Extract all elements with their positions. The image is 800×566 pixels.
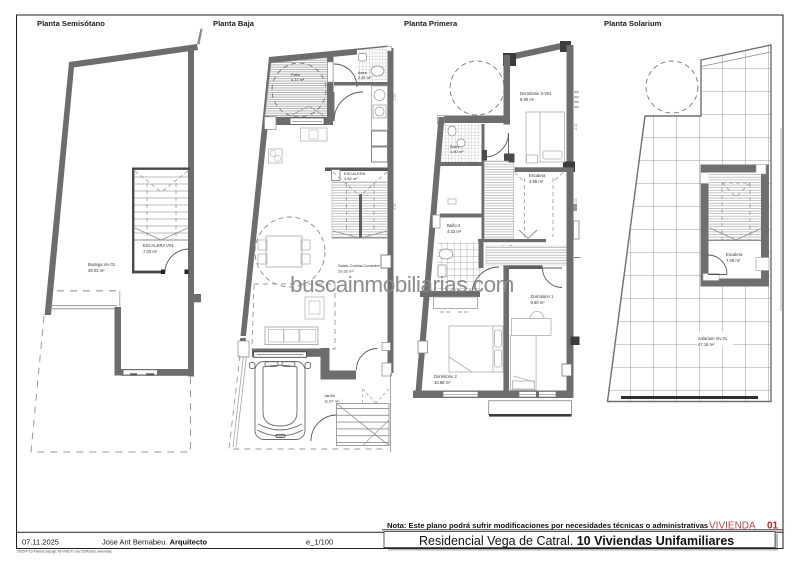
svg-text:9.60 m²: 9.60 m² bbox=[531, 300, 546, 305]
svg-text:Dormitorio 2: Dormitorio 2 bbox=[434, 374, 457, 379]
svg-text:47.16 m²: 47.16 m² bbox=[698, 342, 715, 347]
svg-text:4.33 m²: 4.33 m² bbox=[447, 229, 462, 234]
svg-text:8.90 m²: 8.90 m² bbox=[520, 97, 535, 102]
svg-text:Dormitorio 1: Dormitorio 1 bbox=[531, 294, 554, 299]
svg-text:11.67 m²: 11.67 m² bbox=[324, 399, 340, 404]
svg-text:Escalera: Escalera bbox=[529, 173, 546, 178]
svg-text:Solarium Viv 01: Solarium Viv 01 bbox=[698, 336, 728, 341]
svg-text:Dormitorio 3-V01: Dormitorio 3-V01 bbox=[520, 91, 552, 96]
svg-text:7.03 m²: 7.03 m² bbox=[143, 249, 158, 254]
svg-text:4.96 m²: 4.96 m² bbox=[529, 179, 544, 184]
svg-text:Jose Ant Bernabeu. Arquitecto: Jose Ant Bernabeu. Arquitecto bbox=[102, 538, 207, 547]
svg-text:Planta Primera: Planta Primera bbox=[404, 19, 458, 28]
svg-text:Jardín: Jardín bbox=[324, 393, 335, 398]
svg-text:Escalera: Escalera bbox=[726, 252, 743, 257]
svg-text:Planta Baja: Planta Baja bbox=[213, 19, 255, 28]
svg-text:Nota: Este plano podrá sufrir: Nota: Este plano podrá sufrir modificaci… bbox=[387, 521, 708, 530]
svg-text:07.11.2025: 07.11.2025 bbox=[22, 538, 59, 547]
svg-text:buscainmobiliarias.com: buscainmobiliarias.com bbox=[290, 272, 514, 297]
svg-text:2025-P10.Planos.baj.ajb.T8-V06: 2025-P10.Planos.baj.ajb.T8-V06.07.nov.25… bbox=[17, 550, 112, 554]
svg-text:4.80 m²: 4.80 m² bbox=[450, 149, 464, 154]
svg-text:39.03 m²: 39.03 m² bbox=[88, 268, 105, 273]
svg-text:Bodega Viv 01: Bodega Viv 01 bbox=[88, 262, 116, 267]
svg-text:Baño 2: Baño 2 bbox=[447, 223, 461, 228]
svg-text:4.11 m²: 4.11 m² bbox=[291, 77, 305, 82]
svg-text:Salón-Cocina-Comedor: Salón-Cocina-Comedor bbox=[338, 263, 380, 268]
svg-text:3.33: 3.33 bbox=[574, 198, 578, 205]
svg-text:10.88 m²: 10.88 m² bbox=[434, 380, 451, 385]
svg-text:2.81: 2.81 bbox=[393, 93, 397, 100]
svg-text:Planta Semisótano: Planta Semisótano bbox=[37, 19, 105, 28]
svg-text:2.81 m²: 2.81 m² bbox=[358, 75, 372, 80]
svg-text:7.09 m²: 7.09 m² bbox=[726, 258, 741, 263]
svg-text:4.62: 4.62 bbox=[393, 203, 397, 210]
svg-text:4.82 m²: 4.82 m² bbox=[344, 176, 358, 181]
svg-text:Planta Solarium: Planta Solarium bbox=[604, 19, 662, 28]
svg-text:Residencial Vega de Catral. 10: Residencial Vega de Catral. 10 Viviendas… bbox=[419, 534, 734, 548]
svg-text:2.52: 2.52 bbox=[574, 123, 578, 130]
svg-text:ESCALERA V01: ESCALERA V01 bbox=[143, 243, 174, 248]
svg-text:e_1/100: e_1/100 bbox=[306, 538, 333, 547]
